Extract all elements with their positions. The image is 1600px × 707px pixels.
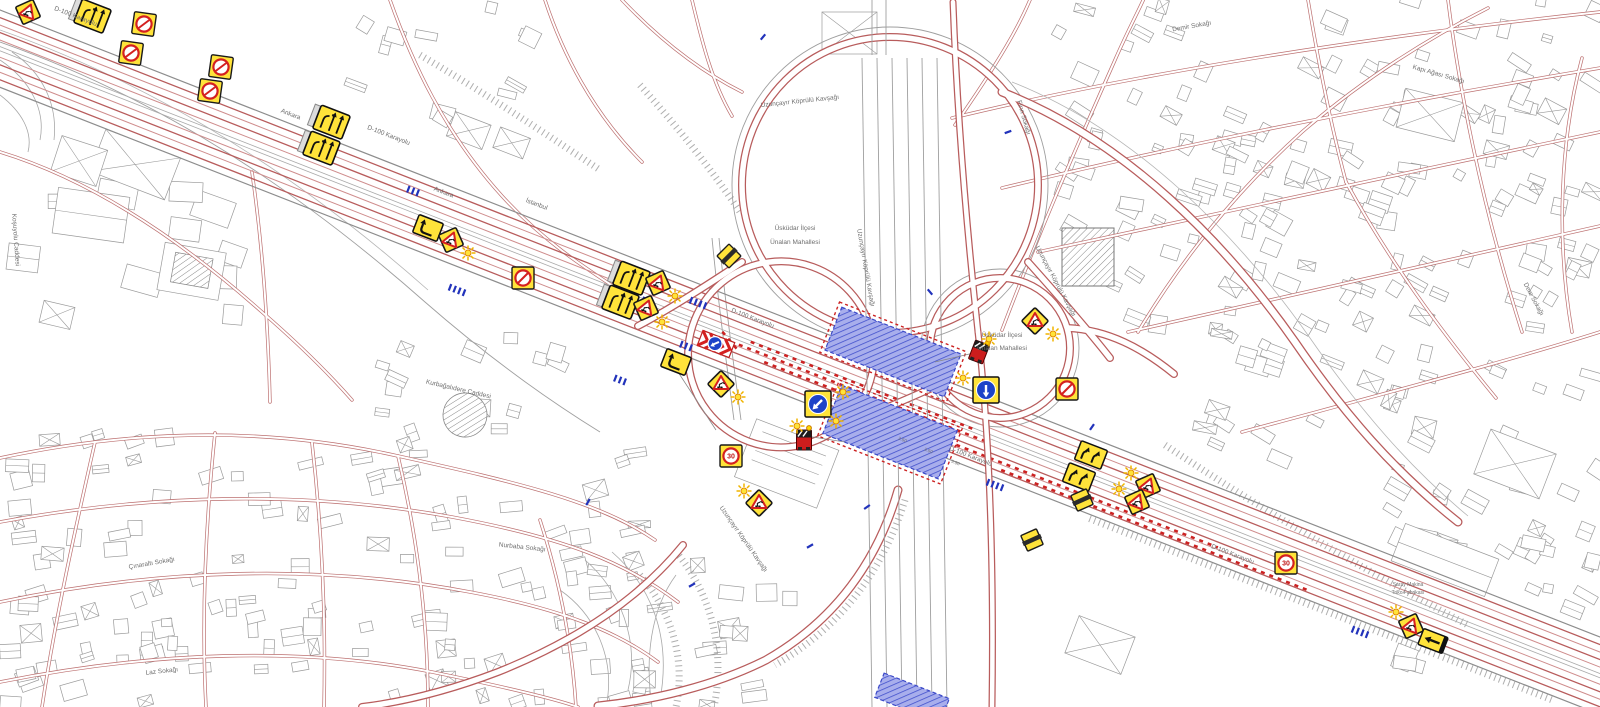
no-stopping-sign [512,267,534,289]
building [356,15,374,34]
building [1560,599,1585,620]
building [509,694,527,707]
building [1576,521,1596,542]
building [1127,88,1142,105]
building [1155,0,1169,15]
building [245,610,265,625]
building [1051,25,1066,40]
lane-arrow-markings [449,284,466,296]
building [367,537,390,551]
warning-flasher [829,414,844,429]
maintenance-truck [797,426,812,451]
map-label: 3.50 [951,459,961,467]
road-surface [742,37,1038,333]
building [1325,55,1342,73]
warning-flasher [655,315,670,330]
building [569,528,591,545]
map-label: Demir Sokağı [1172,20,1212,34]
warning-flasher [836,385,851,400]
road-surface [545,0,642,162]
building [1580,72,1600,93]
building [1386,280,1404,298]
building [1478,105,1495,124]
roadwork-warning-sign [11,0,46,29]
building [8,499,32,516]
building [1399,0,1421,9]
building [169,181,203,202]
building [1526,321,1545,333]
building [226,599,237,616]
building [1267,449,1292,470]
sign-value: 30 [1282,561,1290,568]
building [634,671,656,688]
no-stopping-sign [119,41,144,66]
building [1565,186,1580,197]
building [446,547,463,556]
building [415,30,438,42]
building [699,699,715,707]
building [20,623,43,643]
building [1580,368,1600,381]
building [1584,552,1600,570]
building [167,636,177,651]
building [231,472,243,482]
building [41,546,64,561]
building [1543,583,1554,593]
warning-flasher [956,371,971,386]
building [1160,244,1180,261]
warning-flasher [1046,327,1061,342]
building [1587,458,1600,483]
building [39,433,60,446]
building [375,360,390,371]
building [108,528,131,541]
building [104,541,127,557]
building [400,554,413,563]
building [1074,3,1096,17]
building [756,584,777,602]
lane-arrow-markings [689,583,695,587]
building [589,586,611,600]
warning-flasher [668,289,683,304]
building [1207,437,1224,451]
building [92,429,105,441]
building [1160,106,1182,126]
building [504,332,518,343]
lane-arrow-markings [807,544,813,548]
lane-arrow-markings [761,34,765,39]
building [344,78,367,93]
building [60,679,88,701]
map-label: Ünalan Mahallesi [770,238,820,246]
map-label: İstanbul [525,195,550,212]
building [1352,311,1373,332]
building [149,580,163,597]
building [1543,291,1558,307]
building [424,612,448,631]
traffic-plan-map: 3030 D-100 KarayoluAnkaraD-100 KarayoluA… [0,0,1600,707]
building [1315,320,1329,333]
building [732,626,748,642]
building [1528,519,1546,536]
building [695,644,718,657]
building [1581,244,1600,263]
building [631,658,645,672]
building [1581,182,1600,201]
map-labels-layer: D-100 KarayoluAnkaraD-100 KarayoluAnkara… [10,5,1545,676]
warning-flasher [1124,466,1139,481]
building [1474,429,1557,499]
building [375,408,390,417]
building [1535,0,1547,7]
end-of-restriction-sign [1016,524,1047,555]
building [409,450,427,458]
building [1417,344,1432,362]
building [1223,106,1246,124]
building [1429,286,1448,302]
building [291,660,309,672]
building [6,243,41,273]
map-label: Laz Sokağı [145,666,178,676]
building [1273,272,1301,295]
no-stopping-sign [1056,378,1078,400]
building [113,619,128,635]
warning-flasher [731,390,746,405]
building [464,658,475,668]
building [1551,197,1568,216]
building [1357,370,1384,394]
building [587,564,607,577]
building [32,464,45,482]
mandatory-direction-sign [805,391,831,417]
building [1065,616,1135,675]
building [491,424,507,434]
building [1489,365,1506,379]
direction-arrow-sign [1418,628,1448,653]
roadwork-warning-sign [1022,308,1049,335]
warning-flasher [461,246,476,261]
building [1415,49,1430,61]
building [303,618,321,636]
building [239,595,256,604]
guardrail-hatching [1090,519,1556,701]
building [278,578,296,588]
building [1242,222,1256,239]
building [1537,98,1567,125]
road-surface [1448,0,1522,332]
double-lane-shift-sign [1074,441,1107,470]
no-stopping-sign [198,79,223,104]
map-label: D-100 Karayolu [366,124,411,147]
road-surface [622,0,742,92]
building [396,341,414,358]
building [1177,85,1192,102]
building [432,521,451,531]
building [308,638,321,656]
map-label: Saray Makina [1393,582,1424,588]
roadwork-warning-sign [746,490,773,517]
building [232,554,244,563]
building [476,688,489,704]
map-label: Üsküdar İlçesi [982,330,1023,339]
map-label: Çınaraltı Sokağı [128,556,175,571]
building [457,496,468,513]
building [1293,314,1316,337]
building [1541,34,1553,44]
building [485,1,498,14]
building [1557,483,1579,501]
road-surface [692,0,732,116]
building [1557,237,1575,251]
building [1342,151,1363,169]
building [126,454,142,466]
traffic-plan-canvas: 3030 D-100 KarayoluAnkaraD-100 KarayoluA… [0,0,1600,707]
building [1071,61,1100,87]
sign-value: 30 [727,454,735,461]
building [1492,115,1506,134]
building [1533,383,1547,395]
speed-limit-sign: 30 [720,445,742,467]
building [506,403,521,418]
building [1495,544,1513,560]
building [1383,502,1402,518]
building [281,626,305,646]
warning-flasher [737,484,752,499]
building [121,264,164,298]
lane-arrow-markings [614,375,626,385]
building [0,696,21,707]
map-label: Nurbaba Sokağı [498,542,546,554]
building [208,599,223,614]
building [39,300,75,329]
building [189,662,212,673]
building [222,304,243,325]
building [1573,585,1598,605]
building [351,451,373,465]
map-label: Ünalan Mahallesi [977,344,1027,352]
building [1528,173,1546,186]
warning-flasher [1112,482,1127,497]
building [92,464,109,473]
building [5,459,29,473]
building [532,587,546,601]
building [81,602,99,620]
building [1376,345,1394,364]
building [1393,655,1417,671]
building [394,465,421,481]
building [1297,260,1316,272]
building [1192,178,1217,196]
arrow-board-trailer [697,330,734,357]
building [11,530,36,545]
building [161,618,172,626]
road-surface [1068,328,1174,374]
lane-arrow-markings [1090,424,1094,430]
building [1505,290,1527,308]
building [1131,24,1154,43]
building [690,558,705,573]
map-label: Üsküdar İlçesi [775,223,816,232]
building [131,592,148,609]
building [0,644,21,659]
building [353,648,369,656]
building [1320,354,1344,370]
building [500,501,523,513]
speed-limit-sign: 30 [1275,552,1297,574]
building [741,689,767,703]
building [497,88,517,100]
map-label: Ankara [433,186,455,200]
building [582,479,608,501]
building [783,591,797,605]
lane-arrow-markings [928,289,932,294]
building [566,571,578,586]
map-label: Triko Fabrikası [1392,590,1425,596]
building [137,694,154,707]
building [1507,52,1531,72]
mandatory-direction-sign [973,377,999,403]
building [1125,266,1145,283]
building [359,621,373,633]
lane-arrow-markings [1005,131,1012,133]
warning-flasher [790,419,805,434]
building [1260,237,1282,257]
building [297,506,308,521]
building [1453,169,1466,181]
building [521,582,532,592]
building [254,664,268,674]
map-label: Ankara [280,108,302,122]
building [1525,582,1542,596]
work-zone [875,673,950,707]
no-stopping-sign [209,55,234,80]
power-pylon [50,136,107,187]
building [168,217,201,243]
building [52,187,130,243]
lane-arrow-markings [1352,626,1369,638]
building [298,457,324,470]
building [445,639,456,651]
building [1223,157,1236,175]
warning-flasher [1389,605,1404,620]
building [718,585,744,601]
building [493,127,531,159]
building [1563,384,1584,401]
no-stopping-sign [132,12,157,37]
building [741,680,764,691]
building [1461,489,1489,514]
